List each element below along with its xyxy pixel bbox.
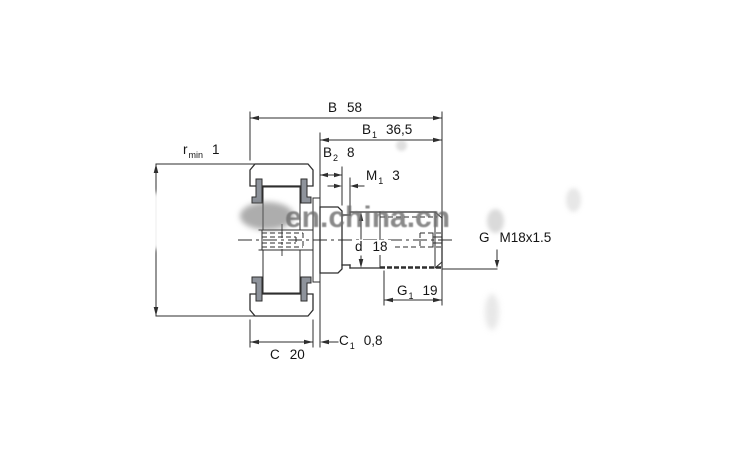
- dim-subscript: 1: [372, 130, 377, 140]
- watermark-faint-blob: [396, 140, 407, 151]
- watermark-light-blob: [137, 192, 169, 250]
- dim-subscript: 2: [333, 153, 338, 163]
- dim-symbol: C: [339, 333, 349, 348]
- dim-subscript: 1: [409, 291, 414, 301]
- dim-label-G1: G119: [397, 284, 438, 299]
- dimension-C: [250, 340, 313, 345]
- dim-value: 58: [347, 100, 362, 115]
- dim-value: 18: [373, 239, 388, 254]
- dimension-B1: [320, 138, 442, 143]
- dim-value: 1: [212, 142, 220, 157]
- dim-value: 19: [423, 283, 438, 298]
- dim-label-C1: C10,8: [339, 334, 383, 349]
- dim-label-d: d18: [352, 240, 391, 255]
- dim-label-B1: B136,5: [362, 123, 412, 138]
- dim-subscript: 1: [378, 176, 383, 186]
- dim-label-C: C20: [270, 348, 305, 363]
- dim-label-M1: M13: [366, 169, 400, 184]
- watermark-faint-blob: [485, 294, 499, 330]
- dim-value: 0,8: [364, 333, 383, 348]
- dim-symbol: B: [362, 122, 371, 137]
- dim-label-G-thread: GM18x1.5: [479, 231, 551, 246]
- dim-subscript: min: [189, 150, 204, 160]
- dim-symbol: B: [323, 145, 332, 160]
- dim-symbol: d: [355, 239, 363, 254]
- dim-symbol: r: [183, 142, 188, 157]
- dim-value: 3: [392, 168, 400, 183]
- dim-value: M18x1.5: [500, 230, 552, 245]
- dim-symbol: C: [270, 347, 280, 362]
- dim-symbol: B: [328, 100, 337, 115]
- dim-label-rmin: rmin1: [183, 143, 220, 158]
- dim-subscript: 1: [350, 341, 355, 351]
- dimension-B: [250, 116, 442, 121]
- thread-G-leader: [442, 250, 499, 269]
- dim-label-B: B58: [328, 101, 362, 116]
- dimension-C1: [320, 340, 338, 345]
- dim-symbol: G: [479, 230, 490, 245]
- watermark-faint-blob: [566, 188, 581, 212]
- bearing-technical-drawing: en.china.cn rmin1 B58 B136,5 B28 M13 d18…: [0, 0, 750, 450]
- dim-value: 8: [347, 145, 355, 160]
- dim-value: 36,5: [386, 122, 412, 137]
- dimension-B2: [320, 173, 342, 177]
- dim-value: 20: [290, 347, 305, 362]
- dim-symbol: M: [366, 168, 377, 183]
- dim-symbol: G: [397, 283, 408, 298]
- dim-label-B2: B28: [323, 146, 355, 161]
- dimension-M1: [328, 184, 364, 188]
- watermark-text: en.china.cn: [285, 201, 450, 235]
